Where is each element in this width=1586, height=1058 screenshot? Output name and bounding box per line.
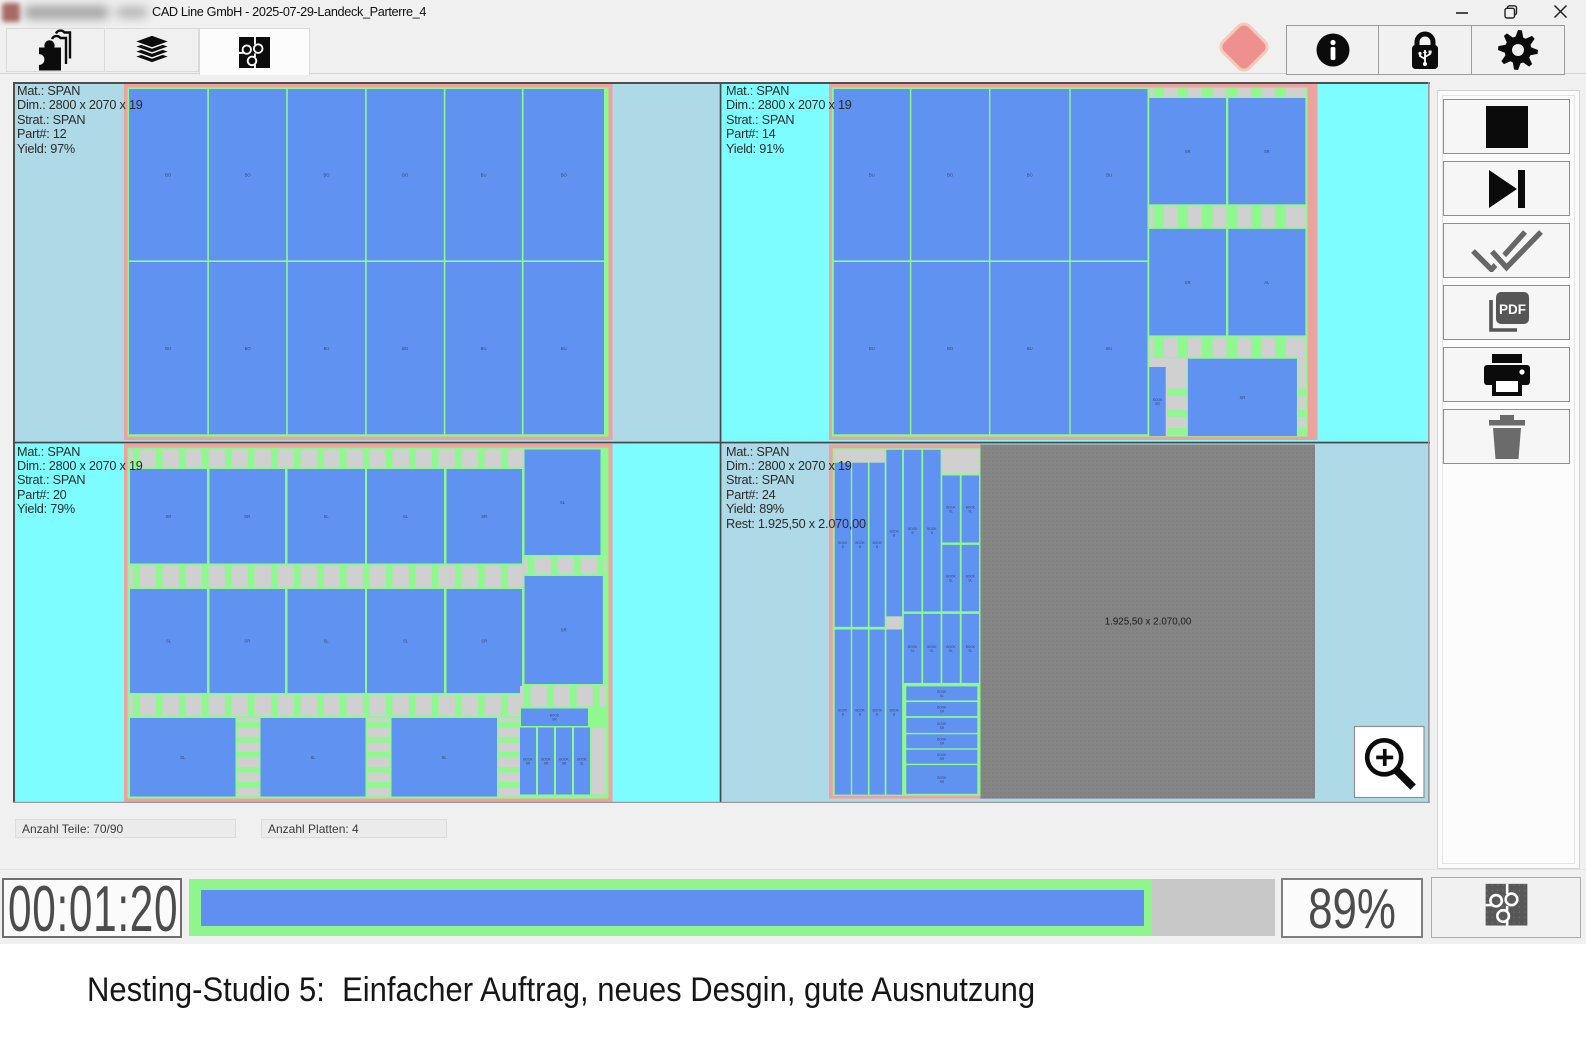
svg-text:BU: BU	[869, 346, 875, 351]
svg-text:BO: BO	[947, 172, 954, 177]
svg-text:SR: SR	[940, 742, 945, 746]
svg-text:BO: BO	[323, 172, 330, 177]
svg-text:SL: SL	[940, 694, 944, 698]
svg-text:SR: SR	[1185, 280, 1191, 285]
svg-text:B: B	[931, 531, 933, 535]
svg-text:B: B	[876, 545, 878, 549]
svg-text:SL: SL	[180, 755, 186, 760]
svg-text:SR: SR	[526, 761, 531, 765]
svg-text:BU: BU	[561, 346, 567, 351]
svg-text:BO: BO	[165, 172, 172, 177]
svg-text:PDF: PDF	[1499, 302, 1526, 317]
svg-text:B: B	[893, 712, 895, 716]
svg-text:BU: BU	[481, 346, 487, 351]
svg-text:SR: SR	[481, 639, 487, 644]
svg-text:SR: SR	[940, 726, 945, 730]
svg-text:BO: BO	[245, 346, 252, 351]
svg-text:B: B	[842, 545, 844, 549]
svg-text:SR: SR	[1155, 402, 1160, 406]
svg-text:BU: BU	[1106, 172, 1112, 177]
svg-text:1.925,50 x 2.070,00: 1.925,50 x 2.070,00	[1105, 617, 1192, 628]
svg-text:SL: SL	[324, 514, 330, 519]
svg-text:SL: SL	[442, 755, 448, 760]
svg-text:BO: BO	[402, 346, 409, 351]
svg-text:B: B	[859, 712, 861, 716]
svg-text:BO: BO	[947, 346, 954, 351]
svg-text:SR: SR	[481, 514, 487, 519]
svg-text:SL: SL	[949, 509, 953, 513]
svg-text:SL: SL	[403, 639, 409, 644]
svg-text:BO: BO	[561, 172, 568, 177]
svg-text:BU: BU	[869, 172, 875, 177]
svg-text:B: B	[912, 531, 914, 535]
svg-text:SL: SL	[310, 755, 316, 760]
svg-text:BU: BU	[481, 172, 487, 177]
svg-text:SL: SL	[166, 639, 172, 644]
svg-text:SL: SL	[949, 579, 953, 583]
svg-text:BU: BU	[165, 346, 171, 351]
svg-text:SL: SL	[968, 579, 972, 583]
svg-text:BR: BR	[940, 780, 945, 784]
svg-text:SR: SR	[1185, 149, 1191, 154]
svg-text:SL: SL	[949, 649, 953, 653]
svg-text:SR: SR	[552, 718, 557, 722]
svg-text:BR: BR	[940, 757, 945, 761]
svg-text:SR: SR	[940, 710, 945, 714]
svg-text:SL: SL	[403, 514, 409, 519]
svg-text:SR: SR	[562, 761, 567, 765]
svg-text:BO: BO	[1027, 172, 1034, 177]
svg-text:BO: BO	[402, 172, 409, 177]
svg-text:SL: SL	[911, 649, 915, 653]
svg-text:SL: SL	[324, 639, 330, 644]
svg-text:BO: BO	[245, 172, 252, 177]
svg-text:BU: BU	[324, 346, 330, 351]
svg-text:SR: SR	[1264, 149, 1270, 154]
svg-text:SL: SL	[930, 649, 934, 653]
svg-text:SR: SR	[544, 761, 549, 765]
svg-text:B: B	[893, 533, 895, 537]
svg-text:SR: SR	[1239, 395, 1245, 400]
svg-text:SL: SL	[580, 761, 584, 765]
svg-text:SR: SR	[561, 628, 567, 633]
svg-text:SL: SL	[968, 649, 972, 653]
svg-text:BU: BU	[1106, 346, 1112, 351]
svg-text:B: B	[859, 545, 861, 549]
svg-text:SR: SR	[244, 514, 250, 519]
svg-text:B: B	[876, 712, 878, 716]
svg-text:SL: SL	[968, 509, 972, 513]
svg-text:BU: BU	[1027, 346, 1033, 351]
svg-text:SR: SR	[244, 639, 250, 644]
svg-text:B: B	[842, 712, 844, 716]
svg-text:AL: AL	[1264, 280, 1270, 285]
svg-text:SR: SR	[166, 514, 172, 519]
svg-text:SL: SL	[560, 500, 566, 505]
